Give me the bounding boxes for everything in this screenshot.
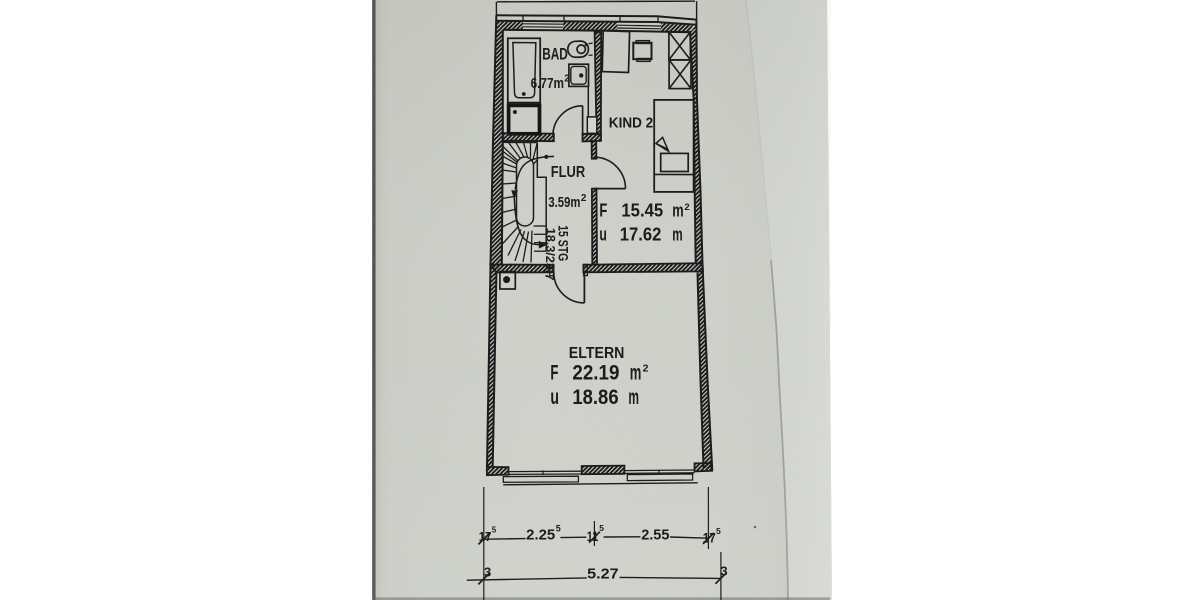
svg-text:17: 17 xyxy=(479,529,492,544)
svg-text:3.59m: 3.59m xyxy=(548,194,580,211)
svg-text:KIND 2: KIND 2 xyxy=(609,116,653,132)
svg-text:2: 2 xyxy=(564,74,570,85)
svg-text:m: m xyxy=(630,361,642,384)
svg-text:u: u xyxy=(599,224,607,244)
svg-text:11: 11 xyxy=(587,529,599,544)
svg-text:2: 2 xyxy=(643,362,649,374)
svg-text:2: 2 xyxy=(581,193,587,204)
svg-text:FLUR: FLUR xyxy=(551,164,586,181)
svg-text:BAD: BAD xyxy=(542,46,568,64)
svg-text:2.25: 2.25 xyxy=(526,527,555,543)
svg-text:22.19: 22.19 xyxy=(572,362,619,385)
svg-text:5: 5 xyxy=(556,524,561,534)
svg-text:m: m xyxy=(628,386,639,409)
svg-text:6.77m: 6.77m xyxy=(531,75,564,92)
svg-text:2: 2 xyxy=(684,202,689,213)
svg-text:m: m xyxy=(672,224,682,244)
svg-text:3: 3 xyxy=(484,564,491,579)
svg-text:5: 5 xyxy=(492,526,497,535)
svg-text:5.27: 5.27 xyxy=(587,567,618,583)
svg-text:3: 3 xyxy=(720,563,727,578)
svg-text:F: F xyxy=(550,361,558,384)
svg-text:5: 5 xyxy=(716,526,721,536)
svg-text:15.45: 15.45 xyxy=(621,201,663,221)
svg-text:F: F xyxy=(599,201,607,221)
svg-text:m: m xyxy=(672,201,683,221)
svg-text:ELTERN: ELTERN xyxy=(569,345,625,362)
svg-text:17: 17 xyxy=(703,531,716,546)
svg-text:u: u xyxy=(550,386,559,409)
svg-text:17.62: 17.62 xyxy=(620,224,662,244)
svg-text:18,3/23,7: 18,3/23,7 xyxy=(542,228,557,281)
svg-text:5: 5 xyxy=(599,523,604,533)
svg-text:2.55: 2.55 xyxy=(641,527,669,543)
svg-text:18.86: 18.86 xyxy=(572,386,618,409)
